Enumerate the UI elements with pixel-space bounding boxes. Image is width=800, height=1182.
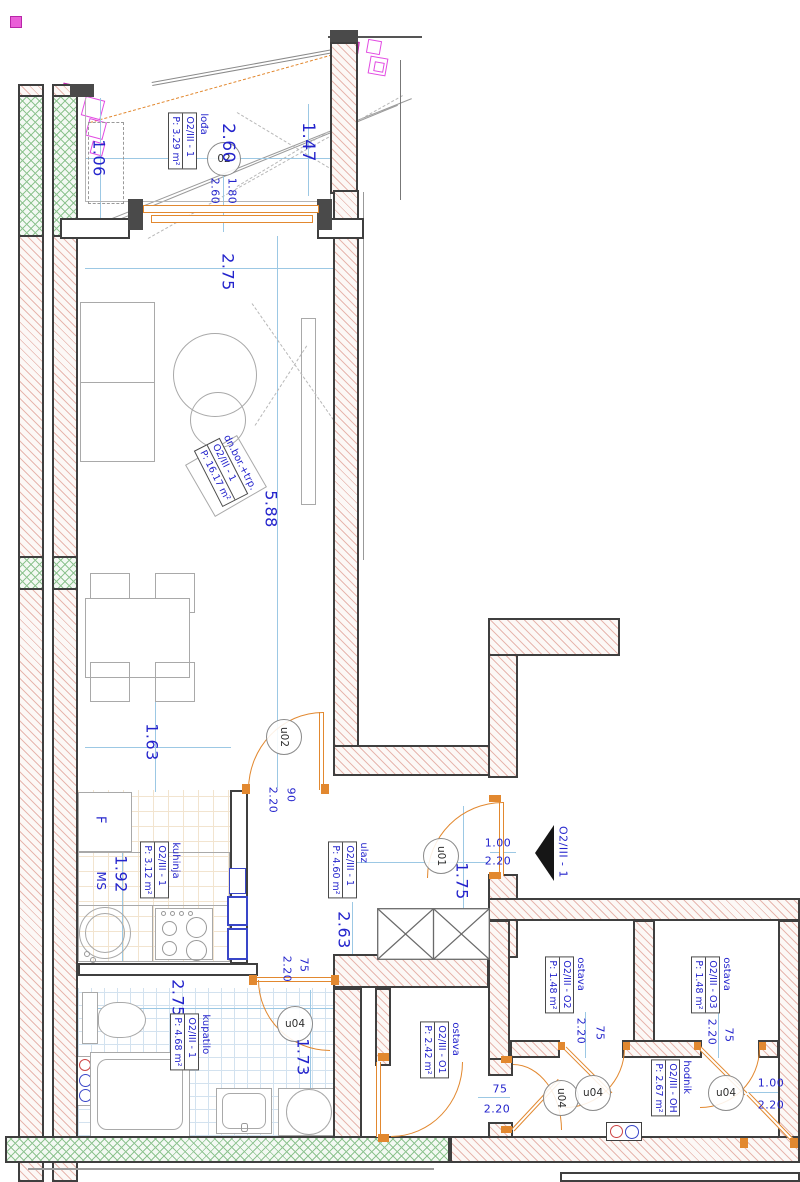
- burner: [186, 917, 207, 938]
- room-name: hodnik: [681, 1060, 691, 1094]
- door-jamb: [790, 1138, 798, 1148]
- dim-hodnik-door-width: 1.00: [758, 1077, 785, 1090]
- height-dashed-line: [252, 303, 334, 420]
- room-label-ostava3: ostava O2/III - O3P: 1.48 m²: [691, 956, 731, 1013]
- room-code: O2/III - 1: [342, 842, 356, 897]
- toilet-tank: [82, 992, 98, 1044]
- balcony-window-frame: [151, 215, 313, 223]
- door-jamb: [501, 1056, 512, 1063]
- wall-step-upper: [488, 618, 620, 656]
- wall-cap: [70, 84, 94, 97]
- dim-bath-width: 2.75: [169, 979, 188, 1017]
- dim-kitchen-depth: 1.92: [112, 855, 131, 893]
- room-name: ostava: [450, 1022, 460, 1055]
- room-code: O2/III - O3: [705, 957, 719, 1012]
- room-name: ulaz: [358, 842, 368, 863]
- dim-line: [478, 1097, 510, 1098]
- wall-window-jamb: [60, 218, 130, 239]
- wall-ostava-mid: [633, 920, 655, 1042]
- dim-bath-height: 1.73: [294, 1038, 313, 1076]
- dim-ostava3-door-height: 2.20: [706, 1019, 719, 1046]
- dining-chair: [90, 662, 130, 702]
- door-jamb: [740, 1138, 748, 1148]
- stove-knob: [188, 911, 193, 916]
- sofa-divider: [80, 382, 155, 383]
- door-jamb: [759, 1042, 766, 1050]
- ground-line: [28, 1168, 434, 1170]
- burner: [186, 940, 207, 961]
- room-label-ulaz: ulaz O2/III - 1P: 4.60 m²: [328, 841, 368, 898]
- door-jamb: [623, 1042, 630, 1050]
- door-jamb: [489, 795, 501, 802]
- dim-hodnik-door-height: 2.20: [758, 1099, 785, 1112]
- dim-window02-width: 1.80: [226, 178, 239, 205]
- door-jamb: [249, 975, 257, 985]
- dining-chair: [155, 662, 195, 702]
- height-dashed-line: [255, 346, 308, 426]
- dim-loggia-right: 1.47: [298, 122, 318, 162]
- dim-living-width: 2.75: [219, 253, 238, 291]
- column-line: [400, 60, 401, 200]
- door-jamb: [378, 1053, 389, 1061]
- wall-loggia-right: [330, 42, 358, 194]
- room-code: O2/III - OH: [665, 1060, 679, 1115]
- room-area: P: 4.60 m²: [329, 842, 342, 897]
- room-label-ostava1: ostava O2/III - O1P: 2.42 m²: [420, 1021, 460, 1078]
- wall-neighbor-below: [560, 1172, 800, 1182]
- duct-symbol: [229, 868, 246, 894]
- wall-step-horizontal: [333, 745, 490, 776]
- door-tag-u04: u04: [575, 1075, 611, 1111]
- room-name: kupatilo: [200, 1014, 210, 1054]
- balcony-window-frame: [143, 205, 319, 213]
- radiator: [301, 318, 316, 505]
- dim-living-partial: 1.63: [143, 723, 162, 761]
- room-area: P: 2.67 m²: [652, 1060, 665, 1115]
- door-jamb: [321, 784, 329, 794]
- room-area: P: 4.68 m²: [171, 1014, 184, 1069]
- parapet-line: [152, 48, 340, 86]
- door-jamb: [558, 1042, 565, 1050]
- insulation-left-inner: [52, 95, 78, 237]
- room-label-bathroom: kupatilo O2/III - 1P: 4.68 m²: [170, 1013, 210, 1070]
- room-area: P: 2.42 m²: [421, 1022, 434, 1077]
- room-label-kitchen: kuhinja O2/III - 1P: 3.12 m²: [140, 841, 180, 898]
- partition-bathroom-top: [78, 963, 258, 976]
- room-name: kuhinja: [170, 842, 180, 878]
- burner: [162, 941, 177, 956]
- window-jamb-block: [128, 199, 143, 230]
- dim-entry-width: 1.00: [485, 837, 512, 850]
- room-name: ostava: [721, 957, 731, 990]
- dim-loggia-width: 2.60: [218, 123, 238, 163]
- sink-inner: [85, 913, 125, 953]
- stove-knob: [179, 911, 184, 916]
- dim-entry-height: 2.20: [485, 855, 512, 868]
- entry-arrow-label: O2/III - 1: [557, 826, 570, 878]
- dim-u02-height: 2.20: [267, 787, 280, 814]
- door-tag-u04: u04: [543, 1080, 579, 1116]
- room-label-ostava2: ostava O2/III - O2P: 1.48 m²: [545, 956, 585, 1013]
- toilet-bowl: [98, 1002, 146, 1038]
- dim-ostava3-door-width: 75: [723, 1028, 736, 1043]
- room-label-loggia: lođa O2/III - 1P: 3.29 m²: [168, 112, 208, 169]
- washing-machine-drum: [286, 1089, 332, 1135]
- burner: [162, 921, 177, 936]
- room-code: O2/III - 1: [182, 113, 196, 168]
- dim-ulaz-width: 2.63: [335, 911, 354, 949]
- duct-symbol: [227, 896, 248, 926]
- room-code: O2/III - O1: [434, 1022, 448, 1077]
- faucet-dot: [84, 951, 90, 957]
- window-jamb-block: [317, 199, 332, 230]
- wall-left-outer: [18, 84, 44, 1182]
- dim-living-height: 5.88: [262, 490, 281, 528]
- label-fridge: F: [93, 816, 108, 824]
- floor-plan: O2/III - 1 02 u02 u01 u04 u04 u04 u04 lo…: [0, 0, 800, 1182]
- wall-ostava2-bottom: [510, 1040, 560, 1058]
- wall-ostava-mid-bottom: [622, 1040, 702, 1058]
- survey-marker: [10, 16, 22, 28]
- plaster-line: [363, 192, 364, 560]
- door-jamb: [694, 1042, 701, 1050]
- dim-ostava1-door-height: 2.20: [484, 1103, 511, 1116]
- door-tag-u02: u02: [266, 719, 302, 755]
- dim-loggia-left: 1.06: [90, 139, 109, 177]
- dim-ulaz-height: 1.75: [453, 862, 472, 900]
- stove-knob: [170, 911, 175, 916]
- room-code: O2/III - 1: [154, 842, 168, 897]
- door-leaf-ostava1: [376, 1062, 381, 1137]
- dim-u02-width: 90: [285, 788, 298, 803]
- door-jamb: [489, 872, 501, 879]
- room-label-hodnik: hodnik O2/III - OHP: 2.67 m²: [651, 1059, 691, 1116]
- pipe-hot: [610, 1125, 623, 1138]
- insulation-left-outer: [18, 556, 44, 590]
- label-ms: MS: [94, 872, 108, 891]
- insulation-left-inner: [52, 556, 78, 590]
- door-tag-u04-bathroom: u04: [277, 1006, 313, 1042]
- room-area: P: 1.48 m²: [692, 957, 705, 1012]
- insulation-left-outer: [18, 95, 44, 237]
- wall-living-right: [333, 190, 359, 747]
- dim-window02-height: 2.60: [209, 178, 222, 205]
- door-jamb: [501, 1126, 512, 1133]
- dim-bathdoor-width: 75: [298, 958, 311, 973]
- dim-line: [85, 268, 333, 269]
- door-jamb: [242, 784, 250, 794]
- wall-block-top: [488, 898, 800, 921]
- survey-marker: [373, 61, 385, 73]
- door-tag-u04-hodnik: u04: [708, 1075, 744, 1111]
- pipe-cold: [625, 1125, 639, 1139]
- room-name: ostava: [575, 957, 585, 990]
- counter-line: [78, 905, 230, 906]
- door-jamb: [331, 975, 339, 985]
- wall-ostava2-left: [488, 920, 510, 1062]
- wall-left-inner: [52, 84, 78, 1182]
- room-name: lođa: [198, 113, 208, 134]
- dim-ostava2-door-width: 75: [594, 1026, 607, 1041]
- survey-marker: [366, 39, 382, 55]
- duct-symbol: [227, 928, 248, 960]
- room-code: O2/III - O2: [559, 957, 573, 1012]
- entry-arrow: [535, 825, 554, 881]
- stove-knob: [161, 911, 166, 916]
- shaft-symbol: [377, 908, 490, 960]
- room-area: P: 3.12 m²: [141, 842, 154, 897]
- room-area: P: 3.29 m²: [169, 113, 182, 168]
- dim-ostava2-door-height: 2.20: [575, 1018, 588, 1045]
- door-jamb: [378, 1134, 389, 1142]
- wall-entry-upper: [488, 654, 518, 778]
- room-code: O2/III - 1: [184, 1014, 198, 1069]
- wall-bathroom-right: [333, 988, 362, 1140]
- dim-bathdoor-height: 2.20: [281, 956, 294, 983]
- dim-ostava1-door-width: 75: [493, 1083, 508, 1096]
- basin-faucet: [241, 1123, 248, 1132]
- room-area: P: 1.48 m²: [546, 957, 559, 1012]
- counter-line: [152, 905, 153, 962]
